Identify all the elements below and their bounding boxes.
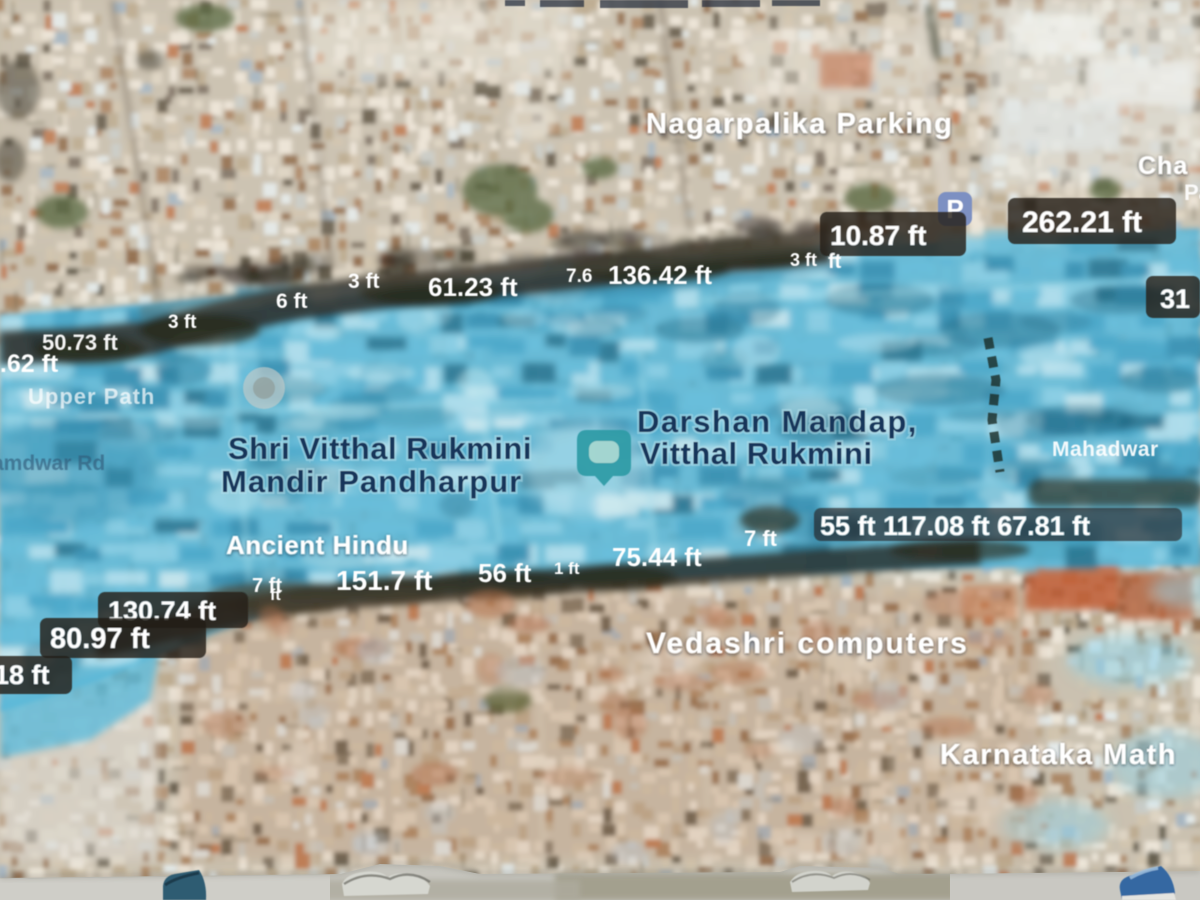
svg-text:6 ft: 6 ft: [276, 290, 308, 313]
svg-text:ft: ft: [270, 587, 281, 604]
svg-text:3 ft: 3 ft: [348, 270, 380, 293]
svg-text:Karnataka Math: Karnataka Math: [940, 739, 1177, 771]
svg-text:Pa: Pa: [1184, 180, 1200, 205]
svg-text:Vitthal Rukmini: Vitthal Rukmini: [640, 436, 873, 471]
svg-text:amdwar Rd: amdwar Rd: [0, 452, 105, 475]
svg-text:Shri Vitthal Rukmini: Shri Vitthal Rukmini: [228, 431, 532, 466]
svg-text:Mandir Pandharpur: Mandir Pandharpur: [221, 464, 522, 499]
svg-text:7 ft: 7 ft: [744, 526, 778, 551]
svg-text:10.87 ft: 10.87 ft: [830, 220, 927, 251]
svg-text:Upper Path: Upper Path: [28, 384, 155, 409]
svg-text:7.6: 7.6: [566, 266, 592, 287]
svg-text:Nagarpalika Parking: Nagarpalika Parking: [646, 108, 953, 140]
svg-text:31: 31: [1160, 284, 1190, 314]
svg-text:151.7 ft: 151.7 ft: [336, 565, 433, 596]
svg-text:61.23 ft: 61.23 ft: [428, 272, 518, 302]
svg-text:0.62 ft: 0.62 ft: [0, 350, 59, 378]
svg-text:3 ft: 3 ft: [790, 250, 817, 270]
svg-text:Darshan Mandap,: Darshan Mandap,: [637, 404, 918, 439]
svg-text:262.21 ft: 262.21 ft: [1022, 206, 1142, 239]
svg-text:Ancient Hindu: Ancient Hindu: [226, 530, 409, 560]
svg-text:1 ft: 1 ft: [554, 559, 580, 578]
svg-text:Mahadwar: Mahadwar: [1052, 438, 1159, 461]
svg-text:Vedashri computers: Vedashri computers: [646, 627, 969, 660]
svg-text:75.44 ft: 75.44 ft: [612, 542, 702, 572]
svg-text:3 ft: 3 ft: [168, 312, 197, 333]
svg-text:ft: ft: [828, 251, 842, 273]
svg-text:18 ft: 18 ft: [0, 660, 50, 690]
svg-text:80.97 ft: 80.97 ft: [50, 623, 150, 655]
svg-text:56 ft: 56 ft: [478, 558, 532, 588]
svg-text:136.42 ft: 136.42 ft: [608, 260, 712, 290]
svg-text:55 ft 117.08 ft 67.81 ft: 55 ft 117.08 ft 67.81 ft: [820, 511, 1090, 541]
svg-text:Cha: Cha: [1138, 152, 1188, 180]
